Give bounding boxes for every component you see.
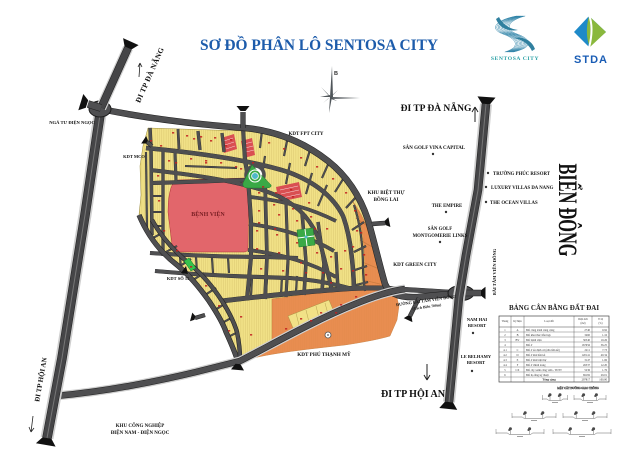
svg-text:THE EMPIRE: THE EMPIRE [432,204,463,209]
svg-text:Diện tích: Diện tích [578,318,588,321]
svg-text:3147: 3147 [584,359,590,362]
svg-text:Tổng cộng: Tổng cộng [542,377,556,382]
svg-text:30540: 30540 [583,339,591,342]
svg-text:RESORT: RESORT [468,323,486,328]
svg-text:12.20: 12.20 [601,364,608,367]
svg-text:ĐI TP HỘI AN: ĐI TP HỘI AN [381,387,446,400]
svg-text:3460: 3460 [584,334,590,337]
svg-text:29.01: 29.01 [601,374,608,377]
svg-text:Đất công trình công cộng: Đất công trình công cộng [526,329,555,332]
svg-text:7.73: 7.73 [602,349,607,352]
svg-text:Đất khai thác hỗn hợp: Đất khai thác hỗn hợp [526,334,551,337]
svg-text:Ký hiệu: Ký hiệu [513,320,522,323]
svg-text:0.92: 0.92 [602,329,607,332]
svg-text:1.76: 1.76 [602,369,607,372]
svg-text:Đất bệnh viện: Đất bệnh viện [526,339,542,342]
svg-text:2211: 2211 [585,349,591,352]
svg-text:KDT SỐ 11: KDT SỐ 11 [167,276,190,281]
svg-text:1.06: 1.06 [602,359,607,362]
svg-text:SÂN GOLF VINA CAPITAL: SÂN GOLF VINA CAPITAL [403,145,466,151]
svg-text:2740: 2740 [584,329,590,332]
svg-text:1.16: 1.16 [602,334,607,337]
svg-text:Đất hạ tầng kỹ thuật: Đất hạ tầng kỹ thuật [526,374,549,377]
svg-text:THE OCEAN VILLAS: THE OCEAN VILLAS [490,201,538,206]
svg-text:MONTGOMERIE LINKS: MONTGOMERIE LINKS [413,234,468,239]
svg-text:BẢNG CÂN BẰNG ĐẤT ĐAI: BẢNG CÂN BẰNG ĐẤT ĐAI [509,304,599,312]
svg-text:5236: 5236 [584,369,590,372]
svg-text:100.00: 100.00 [599,379,607,382]
svg-text:TRƯỜNG PHÚC RESORT: TRƯỜNG PHÚC RESORT [493,171,551,177]
svg-text:BIỂN ĐÔNG: BIỂN ĐÔNG [553,164,582,257]
svg-text:120141: 120141 [582,354,591,357]
svg-text:KDT MCO: KDT MCO [123,154,145,159]
svg-text:4.4: 4.4 [503,364,507,367]
svg-text:C: C [517,349,519,352]
svg-text:56.25: 56.25 [601,344,608,347]
svg-text:KHU CÔNG NGHIỆP: KHU CÔNG NGHIỆP [116,423,165,429]
svg-text:KDT GREEN CITY: KDT GREEN CITY [393,263,437,268]
svg-text:KDT FPT CITY: KDT FPT CITY [288,132,323,137]
svg-text:B: B [517,334,519,337]
svg-text:NAM HAI: NAM HAI [467,317,488,322]
svg-text:SÂN GOLF: SÂN GOLF [428,226,452,232]
svg-text:Đất cây xanh công viên - TDTT: Đất cây xanh công viên - TDTT [526,369,562,372]
svg-text:D: D [516,354,518,357]
svg-text:BỒNG LAI: BỒNG LAI [374,197,399,203]
svg-text:69182: 69182 [583,374,591,377]
svg-text:297817: 297817 [582,379,591,382]
svg-text:NGÃ TƯ ĐIỆN NGỌC: NGÃ TƯ ĐIỆN NGỌC [49,120,95,125]
svg-text:10.26: 10.26 [601,339,608,342]
svg-text:167656: 167656 [582,344,591,347]
svg-text:B: B [334,71,338,77]
svg-text:LE BELHAMY: LE BELHAMY [461,354,492,359]
svg-text:40.34: 40.34 [601,354,608,357]
svg-text:RESORT: RESORT [467,360,485,365]
svg-text:Đất ở nhà biệt thự: Đất ở nhà biệt thự [526,359,547,362]
svg-text:4.1: 4.1 [503,349,507,352]
svg-text:MẶT CẮT ĐƯỜNG GIAO THÔNG: MẶT CẮT ĐƯỜNG GIAO THÔNG [557,387,598,390]
svg-text:STDA: STDA [574,54,608,66]
svg-text:Loại đất: Loại đất [544,320,553,323]
svg-text:BỆNH VIỆN: BỆNH VIỆN [191,210,225,218]
svg-text:Đất ở ổn định cư (nhà liền kề): Đất ở ổn định cư (nhà liền kề) [526,349,560,352]
svg-text:BV: BV [516,339,520,342]
svg-text:SƠ ĐỒ PHÂN LÔ SENTOSA CITY: SƠ ĐỒ PHÂN LÔ SENTOSA CITY [200,34,438,54]
svg-text:BÃI TẮM VIỄN ĐÔNG: BÃI TẮM VIỄN ĐÔNG [491,248,497,295]
svg-text:CX: CX [516,369,520,372]
svg-text:Đất ở: Đất ở [526,344,533,347]
svg-text:ĐIỆN NAM - ĐIỆN NGỌC: ĐIỆN NAM - ĐIỆN NGỌC [111,430,170,436]
svg-text:Đất ở nhà liền kề: Đất ở nhà liền kề [526,354,546,357]
svg-text:4.2: 4.2 [503,354,507,357]
svg-text:Thang: Thang [502,320,509,323]
svg-text:KHU BIỆT THỰ: KHU BIỆT THỰ [368,190,405,196]
svg-text:KDT PHÚ THẠNH MỸ: KDT PHÚ THẠNH MỸ [297,350,351,358]
svg-text:E: E [517,359,519,362]
svg-text:A: A [516,329,518,332]
svg-text:Tỉ lệ: Tỉ lệ [598,318,604,321]
svg-text:(%): (%) [599,322,603,325]
svg-text:LUXURY VILLAS DA NANG: LUXURY VILLAS DA NANG [491,186,554,191]
svg-text:(m2): (m2) [580,322,585,325]
svg-text:SENTOSA CITY: SENTOSA CITY [491,56,539,62]
svg-text:Đất ở chỉnh trang: Đất ở chỉnh trang [526,364,546,367]
svg-text:4.3: 4.3 [503,359,507,362]
svg-text:26337: 26337 [583,364,591,367]
